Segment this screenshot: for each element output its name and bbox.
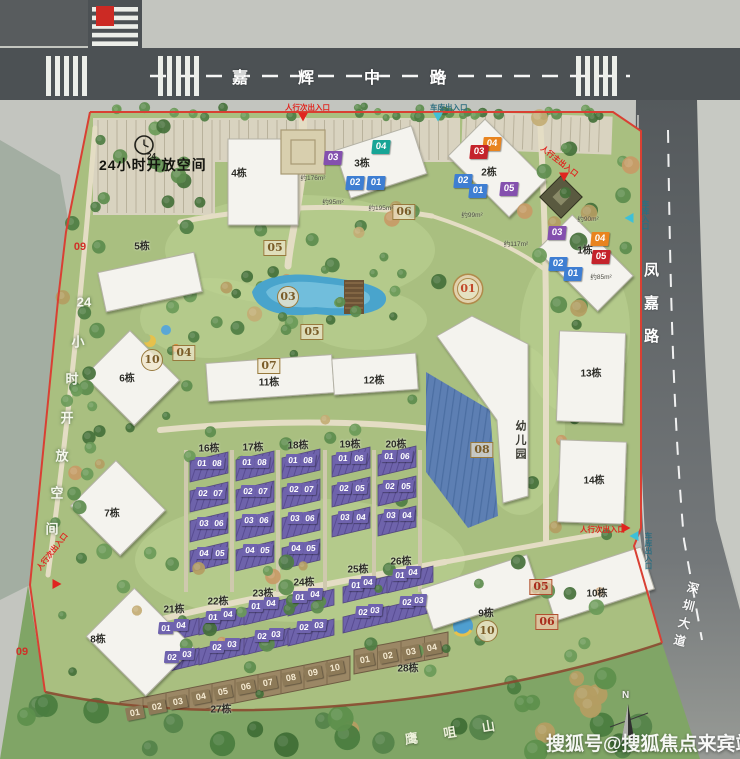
- entrance-label: 车库出入口: [643, 532, 654, 570]
- unit-marker: 03: [287, 512, 303, 524]
- svg-text:24: 24: [147, 152, 156, 161]
- amenity-marker: 03: [277, 286, 299, 308]
- unit-marker: 01: [468, 184, 487, 198]
- unit-marker: 07: [301, 483, 317, 495]
- unit-marker: 04: [399, 509, 415, 521]
- amenity-marker: 01: [457, 278, 479, 300]
- unit-marker: 06: [351, 452, 367, 464]
- boundary-number: 09: [74, 241, 86, 253]
- unit-marker: 04: [422, 640, 442, 656]
- amenity-marker: 08: [470, 442, 493, 458]
- building-label: 5栋: [134, 238, 150, 253]
- unit-area-label: 约195m²: [369, 202, 394, 212]
- unit-marker: 04: [353, 511, 369, 523]
- amenity-marker: 10: [141, 349, 163, 371]
- building-label: 12栋: [363, 372, 384, 387]
- building-label: 13栋: [580, 365, 601, 380]
- unit-marker: 01: [381, 450, 397, 462]
- unit-marker: 04: [196, 547, 212, 559]
- open-space-text-vertical-char: 24: [77, 295, 91, 310]
- unit-marker: 03: [383, 509, 399, 521]
- unit-marker: 06: [397, 450, 413, 462]
- clock-icon: 24: [130, 133, 160, 168]
- road-label-top: 嘉辉中路: [232, 64, 496, 88]
- compass-north-label: N: [622, 690, 629, 701]
- building-label: 8栋: [90, 631, 106, 646]
- amenity-marker: 04: [172, 345, 195, 361]
- unit-marker: 06: [302, 512, 318, 524]
- label-overlay: 嘉辉中路 凤嘉路 深圳大道 鹰咀山 幼儿园 24小时开放空间 24 搜狐号@搜狐…: [0, 0, 740, 759]
- road-label-bottom-right: 深圳大道: [669, 580, 703, 654]
- building-label: 22栋: [207, 593, 228, 608]
- entrance-label: 车库出入口: [430, 102, 468, 113]
- residential-site-plan: 嘉辉中路 凤嘉路 深圳大道 鹰咀山 幼儿园 24小时开放空间 24 搜狐号@搜狐…: [0, 0, 740, 759]
- entrance-marker-left: [630, 531, 639, 541]
- unit-marker: 04: [242, 544, 258, 556]
- amenity-marker: 05: [300, 324, 323, 340]
- unit-marker: 01: [239, 456, 255, 468]
- building-label: 14栋: [583, 472, 604, 487]
- building-label: 24栋: [293, 574, 314, 589]
- unit-marker: 06: [236, 679, 256, 695]
- unit-marker: 02: [164, 651, 180, 663]
- entrance-marker-down: [298, 113, 308, 122]
- unit-marker: 03: [241, 514, 257, 526]
- amenity-marker: 06: [535, 614, 558, 630]
- unit-area-label: 约90m²: [577, 213, 598, 223]
- unit-marker: 03: [401, 644, 421, 660]
- unit-marker: 04: [288, 542, 304, 554]
- entrance-label: 车库入口: [640, 200, 651, 230]
- unit-marker: 02: [336, 482, 352, 494]
- unit-area-label: 约176m²: [301, 172, 326, 182]
- building-label: 19栋: [339, 436, 360, 451]
- unit-marker: 02: [209, 641, 225, 653]
- building-label: 18栋: [287, 437, 308, 452]
- unit-marker: 02: [382, 480, 398, 492]
- entrance-marker-right: [53, 579, 62, 589]
- unit-marker: 05: [213, 684, 233, 700]
- building-label: 6栋: [119, 370, 135, 385]
- building-label: 2栋: [481, 164, 497, 179]
- building-label: 17栋: [242, 439, 263, 454]
- unit-marker: 02: [296, 621, 312, 633]
- building-label: 21栋: [163, 601, 184, 616]
- unit-marker: 01: [292, 591, 308, 603]
- unit-marker: 02: [286, 483, 302, 495]
- kindergarten-label: 幼儿园: [512, 420, 528, 462]
- unit-marker: 08: [254, 456, 270, 468]
- unit-marker: 02: [195, 487, 211, 499]
- unit-marker: 03: [179, 648, 195, 660]
- amenity-marker: 10: [476, 620, 498, 642]
- unit-marker: 10: [325, 660, 345, 676]
- unit-marker: 03: [469, 145, 488, 159]
- open-space-text-vertical-char: 时: [65, 369, 78, 388]
- unit-marker: 04: [360, 576, 376, 588]
- building-label: 27栋: [210, 701, 231, 716]
- mountain-label: 鹰咀山: [403, 711, 522, 748]
- unit-marker: 05: [499, 182, 518, 196]
- building-label: 3栋: [354, 155, 370, 170]
- entrance-marker-down: [433, 113, 443, 122]
- building-label: 10栋: [586, 585, 607, 600]
- unit-area-label: 约85m²: [590, 271, 611, 281]
- unit-marker: 01: [285, 454, 301, 466]
- watermark: 搜狐号@搜狐焦点来宾站: [546, 729, 740, 756]
- unit-marker: 03: [367, 604, 383, 616]
- unit-marker: 01: [125, 705, 145, 721]
- unit-marker: 04: [173, 619, 189, 631]
- unit-marker: 04: [220, 608, 236, 620]
- unit-marker: 04: [263, 597, 279, 609]
- unit-marker: 03: [337, 511, 353, 523]
- unit-marker: 08: [209, 457, 225, 469]
- unit-area-label: 约99m²: [461, 209, 482, 219]
- building-label: 7栋: [104, 505, 120, 520]
- entrance-marker-down: [559, 173, 569, 182]
- building-label: 9栋: [478, 605, 494, 620]
- unit-marker: 05: [212, 547, 228, 559]
- road-label-right: 凤嘉路: [640, 262, 661, 361]
- unit-marker: 01: [366, 176, 385, 190]
- unit-marker: 05: [257, 544, 273, 556]
- unit-marker: 01: [335, 452, 351, 464]
- unit-marker: 08: [281, 670, 301, 686]
- unit-marker: 08: [300, 454, 316, 466]
- unit-marker: 03: [224, 638, 240, 650]
- boundary-number: 09: [16, 646, 28, 658]
- unit-marker: 07: [258, 675, 278, 691]
- open-space-text-vertical-char: 间: [45, 519, 58, 538]
- unit-marker: 01: [563, 267, 582, 281]
- unit-marker: 04: [590, 232, 609, 246]
- unit-marker: 01: [205, 611, 221, 623]
- building-label: 11栋: [259, 374, 280, 389]
- building-label: 16栋: [198, 440, 219, 455]
- unit-marker: 05: [591, 250, 610, 264]
- unit-marker: 04: [371, 140, 390, 154]
- unit-marker: 07: [210, 487, 226, 499]
- unit-marker: 03: [268, 628, 284, 640]
- unit-marker: 04: [307, 588, 323, 600]
- unit-marker: 03: [196, 517, 212, 529]
- building-label: 4栋: [231, 165, 247, 180]
- amenity-marker: 06: [392, 204, 415, 220]
- unit-marker: 03: [311, 619, 327, 631]
- open-space-text-vertical-char: 小: [71, 332, 84, 351]
- open-space-text-vertical-char: 空: [50, 483, 63, 502]
- entrance-label: 人行次出入口: [285, 102, 330, 113]
- unit-marker: 04: [405, 566, 421, 578]
- unit-marker: 05: [398, 480, 414, 492]
- amenity-marker: 05: [263, 240, 286, 256]
- unit-marker: 05: [352, 482, 368, 494]
- unit-marker: 04: [191, 689, 211, 705]
- building-label: 20栋: [385, 436, 406, 451]
- building-label: 28栋: [397, 660, 418, 675]
- open-space-text-vertical-char: 放: [55, 446, 68, 465]
- unit-area-label: 约117m²: [504, 238, 528, 248]
- unit-marker: 06: [211, 517, 227, 529]
- unit-marker: 02: [240, 485, 256, 497]
- entrance-marker-left: [625, 213, 634, 223]
- unit-marker: 09: [303, 665, 323, 681]
- unit-marker: 01: [194, 457, 210, 469]
- unit-marker: 06: [256, 514, 272, 526]
- unit-marker: 02: [345, 176, 364, 190]
- unit-marker: 03: [323, 151, 342, 165]
- building-label: 25栋: [347, 561, 368, 576]
- open-space-text-vertical-char: 开: [60, 408, 73, 427]
- unit-marker: 01: [355, 652, 375, 668]
- amenity-marker: 07: [257, 358, 280, 374]
- unit-marker: 03: [547, 226, 566, 240]
- unit-marker: 07: [255, 485, 271, 497]
- unit-area-label: 约95m²: [322, 196, 343, 206]
- unit-marker: 02: [147, 699, 167, 715]
- unit-marker: 02: [378, 648, 398, 664]
- unit-marker: 01: [248, 600, 264, 612]
- entrance-label: 人行次出入口: [580, 524, 625, 535]
- unit-marker: 03: [168, 694, 188, 710]
- unit-marker: 01: [158, 622, 174, 634]
- unit-marker: 05: [303, 542, 319, 554]
- unit-marker: 03: [411, 594, 427, 606]
- amenity-marker: 05: [529, 579, 552, 595]
